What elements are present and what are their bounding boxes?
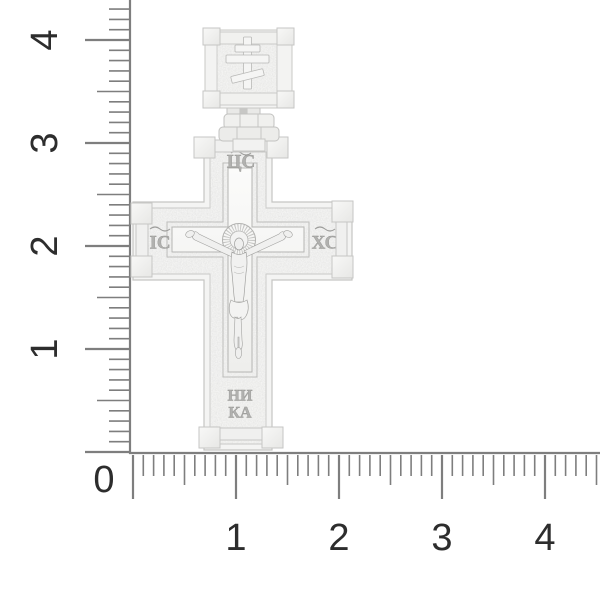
emblem-top-bar	[235, 45, 260, 52]
corner-block	[262, 427, 283, 448]
christ-legs	[234, 317, 242, 350]
inscription-left: ІС	[149, 233, 170, 254]
h-ruler-label-2: 2	[328, 517, 349, 559]
v-ruler-label-2: 2	[24, 235, 66, 256]
corner-block	[131, 256, 152, 277]
bail-bottom-bar	[218, 93, 279, 105]
corner-block	[199, 427, 220, 448]
corner-block	[277, 28, 294, 45]
christ-loincloth	[229, 300, 248, 320]
horizontal-ruler: 1234	[129, 453, 600, 559]
corner-block	[332, 256, 353, 278]
corner-block	[203, 28, 220, 45]
christ-head	[235, 238, 244, 250]
scene: 1234 1234 0 ЦС ІС ХС НИ КА	[0, 0, 600, 600]
v-ruler-label-1: 1	[24, 338, 66, 359]
h-ruler-label-1: 1	[225, 517, 246, 559]
ruler-origin-label: 0	[93, 459, 114, 501]
v-ruler-label-4: 4	[24, 29, 66, 50]
emblem-main-bar	[226, 55, 269, 63]
inscription-nika-line1: НИ	[228, 388, 253, 405]
corner-block	[203, 91, 220, 108]
corner-block	[332, 201, 353, 222]
inscription-nika-line2: КА	[228, 405, 252, 422]
h-ruler-label-3: 3	[431, 517, 452, 559]
corner-block	[277, 91, 294, 108]
inscription-right: ХС	[312, 233, 339, 254]
bail	[203, 28, 294, 108]
corner-block	[131, 203, 152, 224]
vertical-ruler: 1234	[24, 0, 130, 454]
corner-block	[194, 137, 215, 158]
v-ruler-label-3: 3	[24, 132, 66, 153]
h-ruler-label-4: 4	[534, 517, 555, 559]
product-photo-stage: 1234 1234 0 ЦС ІС ХС НИ КА	[0, 0, 600, 600]
christ-feet	[235, 348, 241, 359]
hinge-center-tab	[233, 139, 265, 151]
inscription-top: ЦС	[227, 152, 256, 173]
pendant: ЦС ІС ХС НИ КА	[130, 28, 360, 455]
